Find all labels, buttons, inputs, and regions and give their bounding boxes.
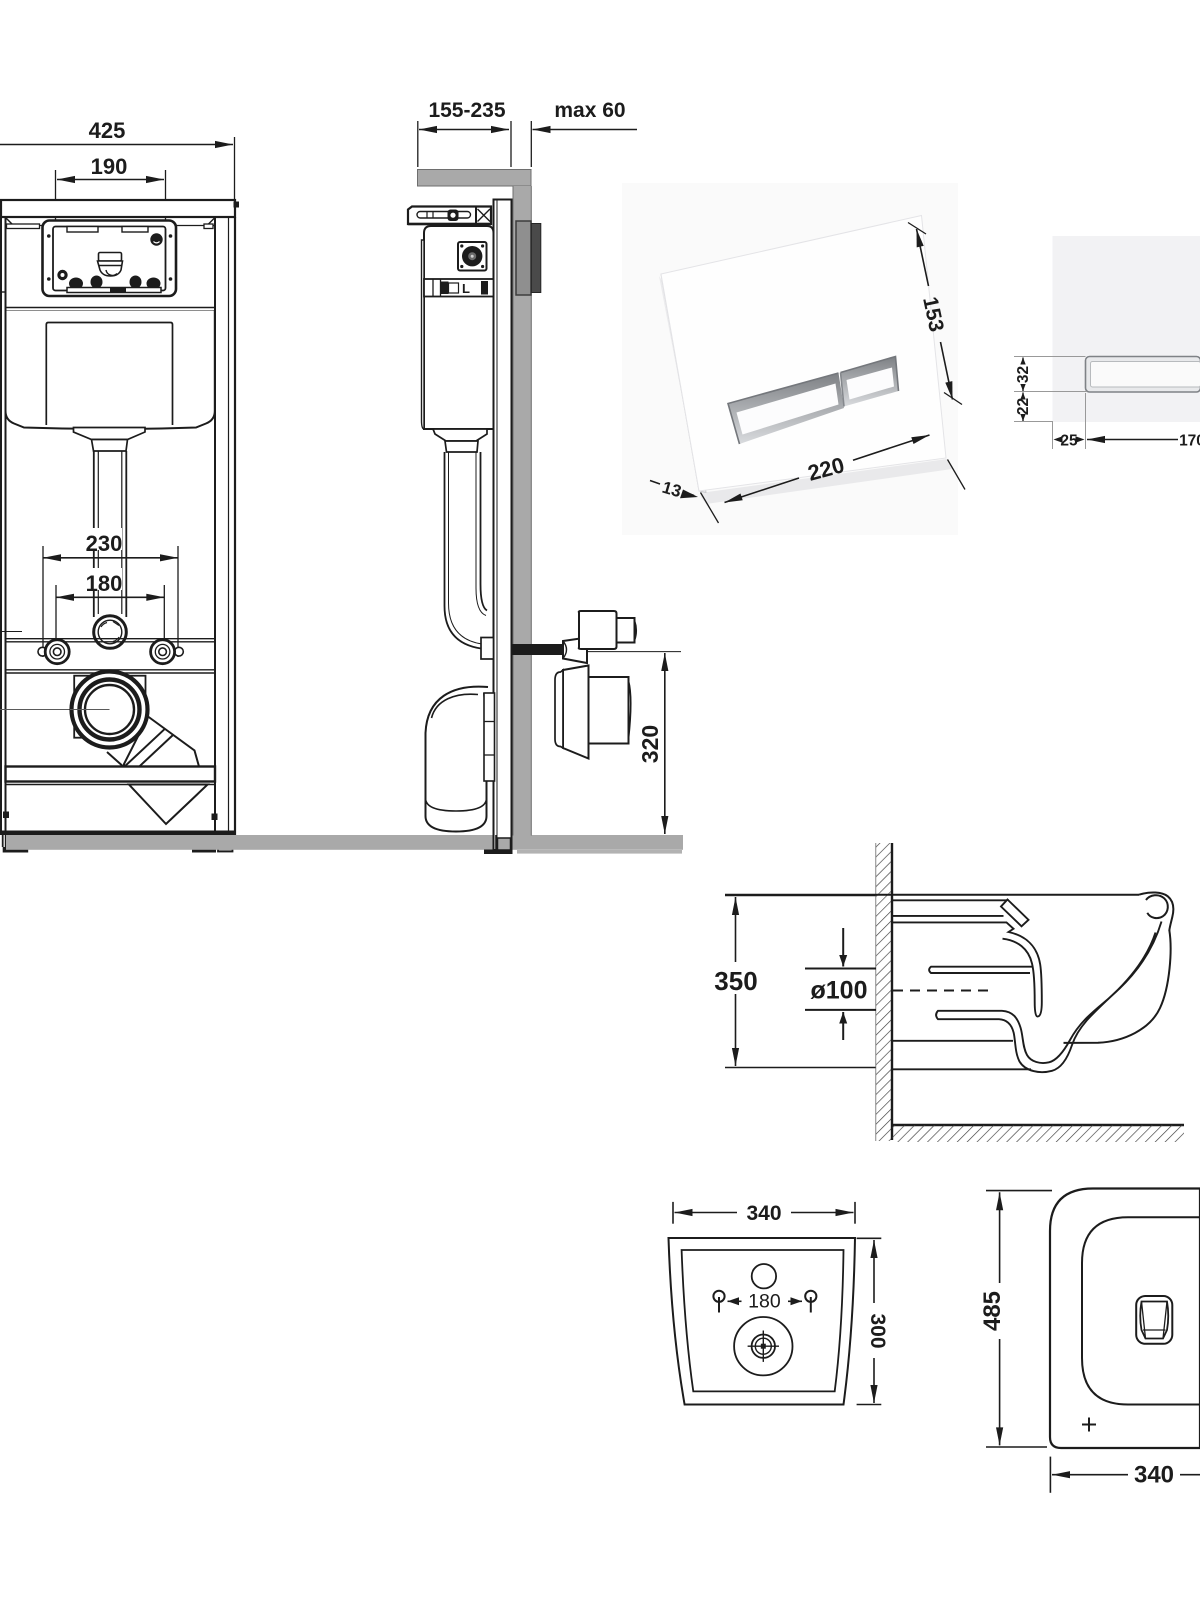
svg-text:320: 320: [637, 725, 663, 763]
svg-text:340: 340: [1134, 1462, 1174, 1489]
svg-text:190: 190: [91, 154, 128, 179]
svg-text:180: 180: [86, 571, 123, 596]
svg-text:485: 485: [979, 1291, 1006, 1331]
svg-text:22: 22: [1015, 398, 1032, 415]
svg-text:300: 300: [866, 1313, 889, 1348]
svg-text:425: 425: [89, 118, 126, 143]
svg-text:170: 170: [1179, 433, 1200, 450]
svg-text:340: 340: [746, 1202, 781, 1225]
svg-text:155-235: 155-235: [428, 99, 505, 122]
svg-text:180: 180: [748, 1291, 781, 1313]
svg-text:350: 350: [714, 966, 757, 996]
svg-text:ø100: ø100: [811, 977, 868, 1005]
svg-text:230: 230: [86, 531, 123, 556]
svg-text:max 60: max 60: [554, 99, 625, 122]
svg-text:32: 32: [1015, 366, 1032, 383]
svg-text:L: L: [462, 281, 470, 296]
svg-text:25: 25: [1060, 433, 1078, 450]
